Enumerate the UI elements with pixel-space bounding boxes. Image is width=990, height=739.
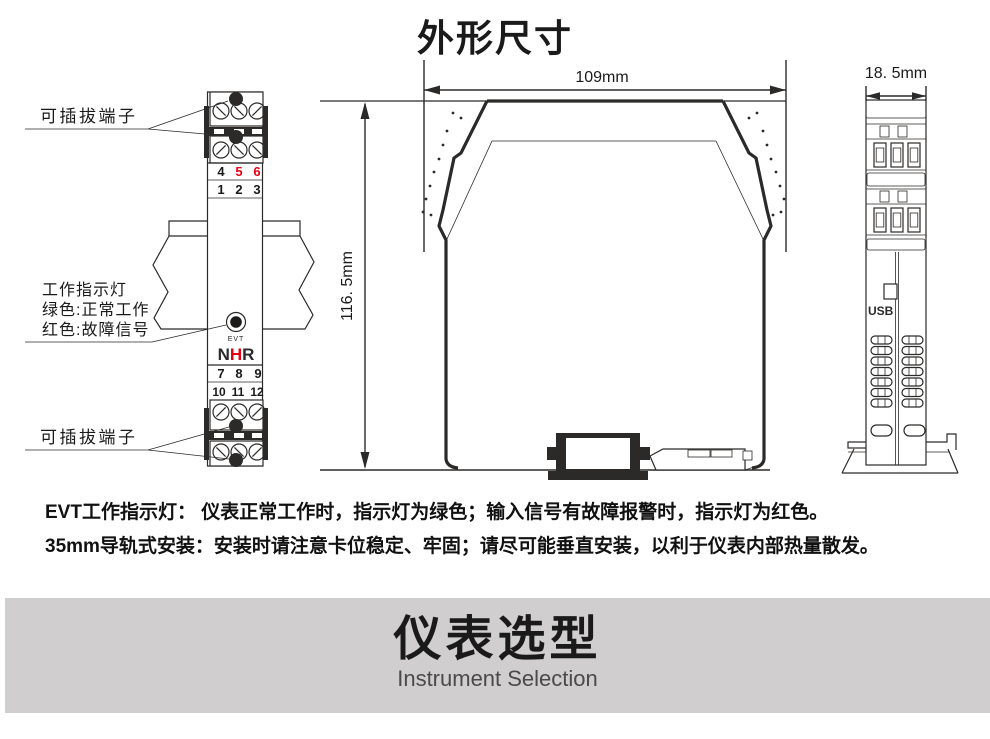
- svg-text:12: 12: [250, 385, 264, 399]
- notes: EVT工作指示灯： 仪表正常工作时，指示灯为绿色；输入信号有故障报警时，指示灯为…: [45, 496, 965, 564]
- svg-text:5: 5: [235, 164, 242, 179]
- callout-indicator: 工作指示灯 绿色:正常工作 红色:故障信号: [25, 281, 226, 342]
- svg-text:绿色:正常工作: 绿色:正常工作: [42, 301, 149, 319]
- svg-text:工作指示灯: 工作指示灯: [42, 281, 127, 299]
- front-view: 4 5 6 1 2 3 EVT NHR 7 8 9: [25, 92, 314, 467]
- side-view: 18. 5mm: [842, 65, 958, 473]
- brand-logo: NHR: [218, 345, 255, 364]
- svg-text:可插拔端子: 可插拔端子: [40, 428, 138, 447]
- svg-text:可插拔端子: 可插拔端子: [40, 107, 138, 126]
- usb-label: USB: [868, 304, 894, 318]
- svg-text:4: 4: [217, 164, 225, 179]
- dimension-drawing: 4 5 6 1 2 3 EVT NHR 7 8 9: [0, 0, 990, 492]
- note-evt-indicator: EVT工作指示灯： 仪表正常工作时，指示灯为绿色；输入信号有故障报警时，指示灯为…: [45, 496, 965, 530]
- svg-text:2: 2: [235, 182, 242, 197]
- housing-outline: [439, 101, 771, 468]
- callout-pluggable-bottom: 可插拔端子: [25, 427, 229, 459]
- banner-title: 仪表选型: [5, 598, 990, 666]
- svg-text:8: 8: [235, 366, 242, 381]
- note-rail-mounting: 35mm导轨式安装：安装时请注意卡位稳定、牢固；请尽可能垂直安装，以利于仪表内部…: [45, 530, 965, 564]
- banner-subtitle: Instrument Selection: [5, 666, 990, 692]
- dimension-18-5mm: 18. 5mm: [865, 65, 927, 100]
- svg-text:116. 5mm: 116. 5mm: [339, 251, 356, 321]
- profile-view: 109mm 116. 5mm: [320, 60, 786, 480]
- terminal-knob: [229, 92, 243, 106]
- svg-text:109mm: 109mm: [575, 69, 628, 86]
- svg-text:11: 11: [232, 385, 245, 399]
- texture-dots: [422, 112, 786, 217]
- svg-text:10: 10: [212, 385, 226, 399]
- side-module-body: USB: [866, 100, 926, 465]
- dimension-116-5mm: 116. 5mm: [339, 102, 370, 469]
- svg-text:7: 7: [217, 366, 224, 381]
- page: 外形尺寸: [0, 0, 990, 739]
- rail-latch: [650, 449, 763, 470]
- svg-text:1: 1: [217, 182, 224, 197]
- svg-text:9: 9: [254, 366, 261, 381]
- terminal-block-top: [204, 92, 268, 163]
- dimension-109mm: 109mm: [424, 60, 786, 252]
- svg-text:3: 3: [253, 182, 260, 197]
- usb-port: [884, 284, 897, 299]
- section-banner: 仪表选型 Instrument Selection: [5, 598, 990, 713]
- led-label: EVT: [228, 336, 245, 343]
- rail-clip: [547, 433, 650, 480]
- svg-text:6: 6: [253, 164, 260, 179]
- svg-text:18. 5mm: 18. 5mm: [865, 65, 927, 82]
- svg-text:红色:故障信号: 红色:故障信号: [42, 321, 149, 339]
- callout-pluggable-top: 可插拔端子: [25, 101, 228, 136]
